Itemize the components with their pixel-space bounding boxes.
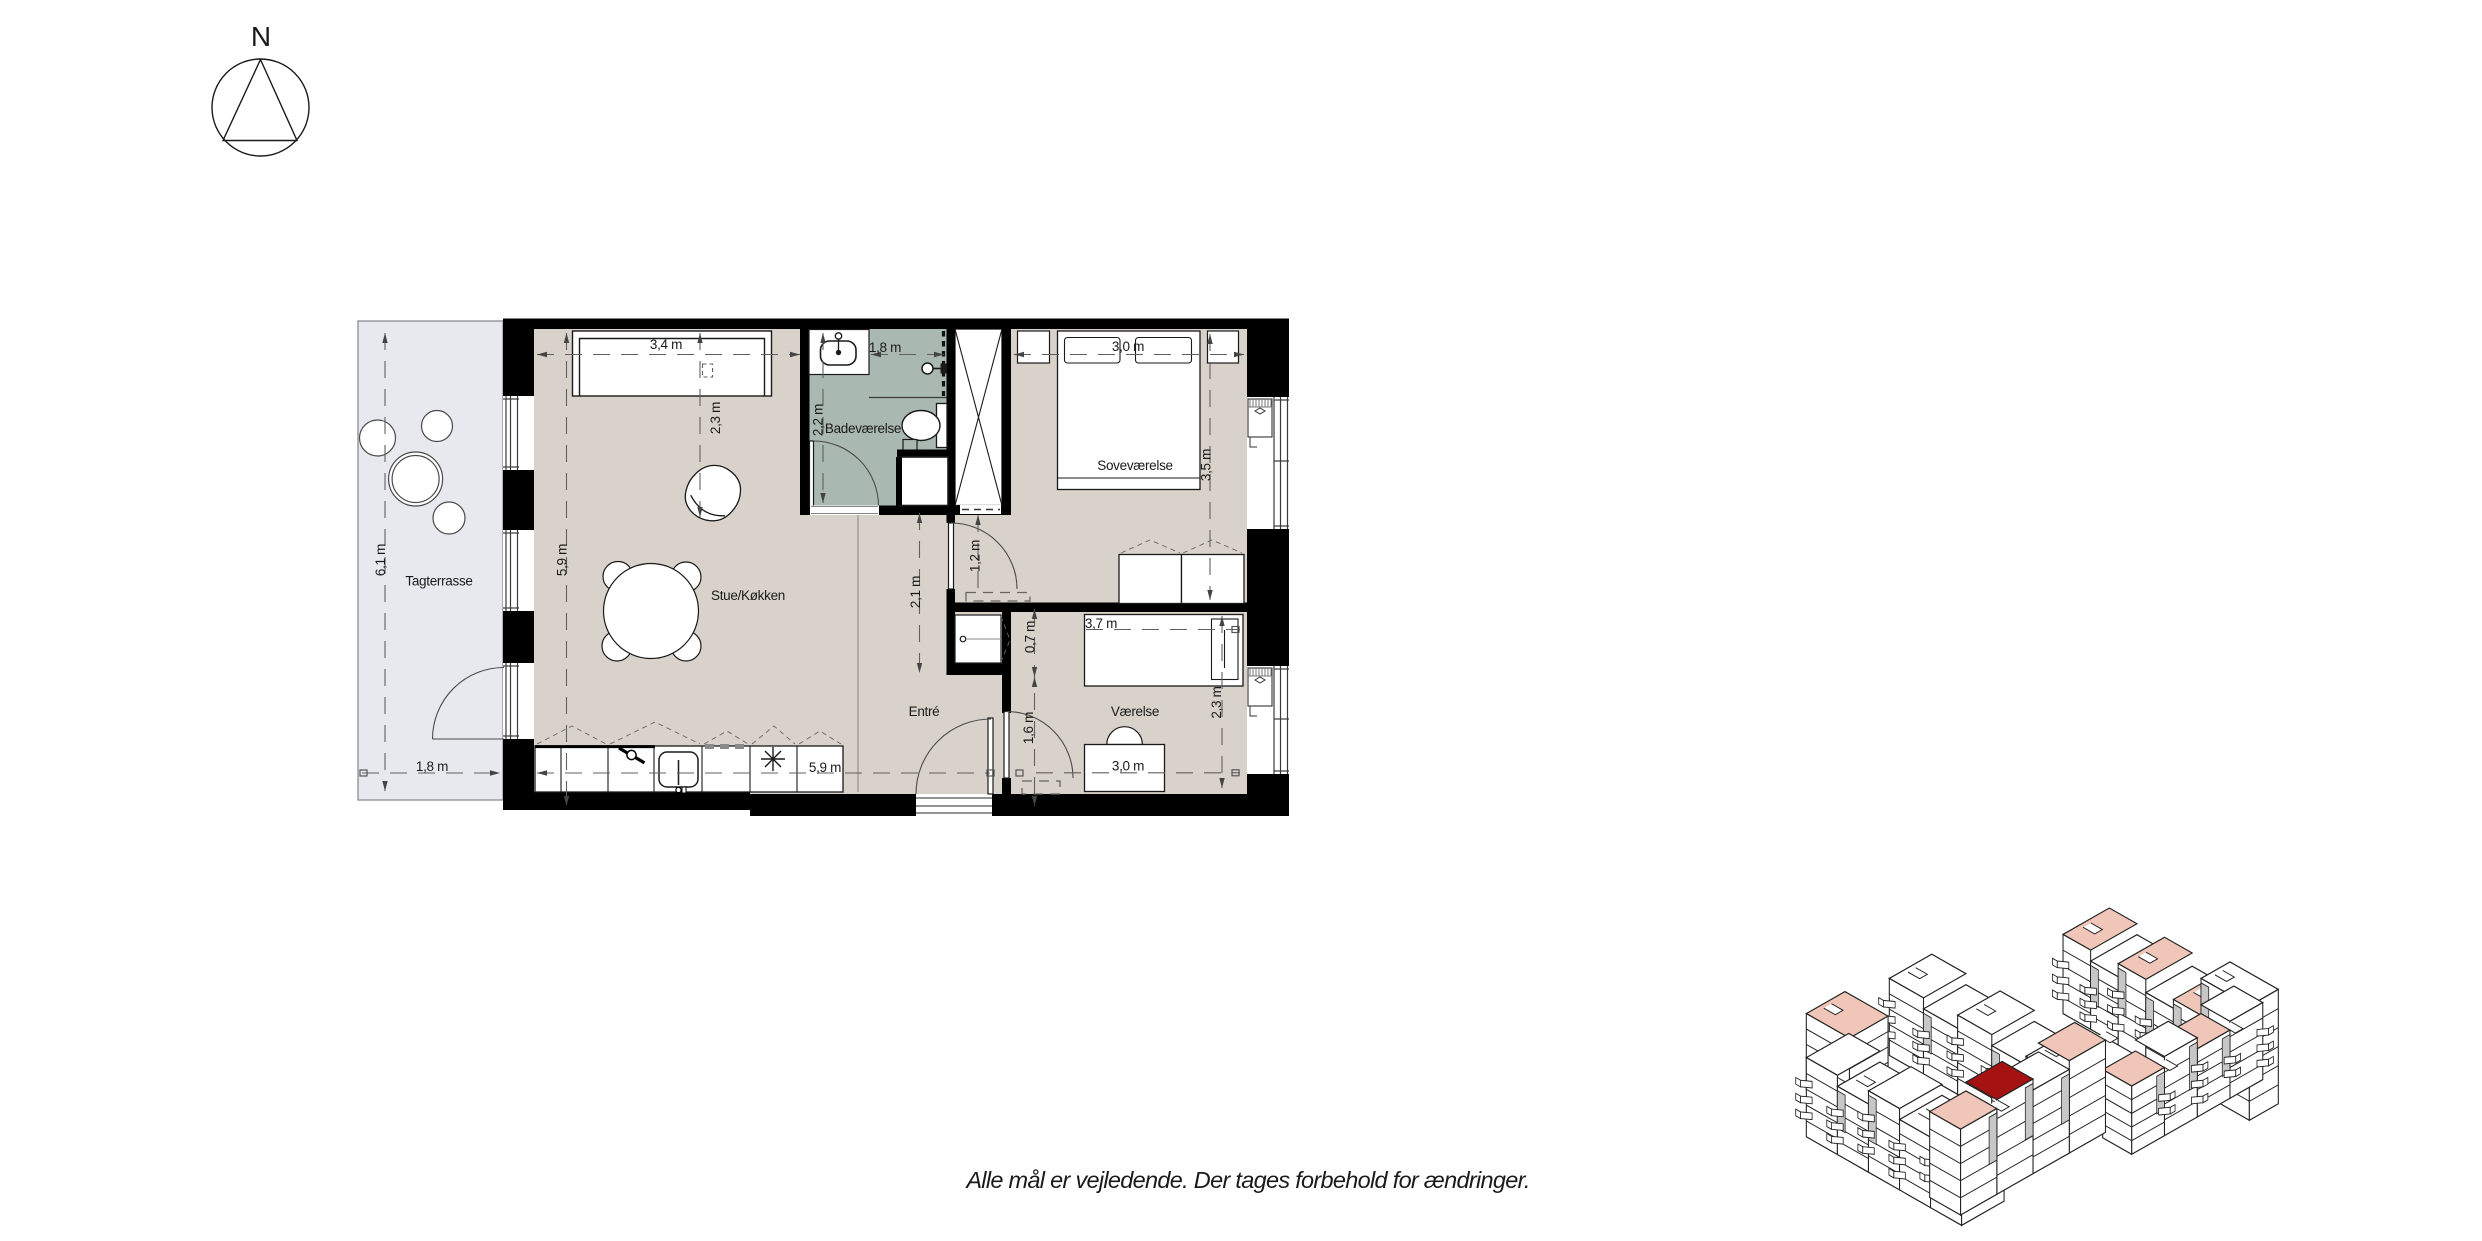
svg-text:5,9 m: 5,9 m [809,760,841,775]
svg-text:Soveværelse: Soveværelse [1097,458,1173,473]
svg-text:5,9 m: 5,9 m [555,544,570,576]
svg-text:Tagterrasse: Tagterrasse [405,574,472,589]
svg-text:1,8 m: 1,8 m [869,340,901,355]
svg-text:Entré: Entré [909,704,940,719]
svg-text:1,6 m: 1,6 m [1021,712,1036,744]
svg-text:0,7 m: 0,7 m [1023,621,1038,653]
svg-text:Badeværelse: Badeværelse [825,421,901,436]
svg-text:1,8 m: 1,8 m [416,759,448,774]
svg-text:3,5 m: 3,5 m [1199,449,1214,481]
svg-text:2,2 m: 2,2 m [811,404,826,436]
svg-text:3,0 m: 3,0 m [1112,759,1144,774]
svg-text:3,4 m: 3,4 m [650,337,682,352]
svg-text:2,3 m: 2,3 m [1209,686,1224,718]
svg-text:2,1 m: 2,1 m [908,576,923,608]
svg-text:6,1 m: 6,1 m [373,544,388,576]
svg-text:Stue/Køkken: Stue/Køkken [711,588,785,603]
svg-text:Alle mål er vejledende. Der ta: Alle mål er vejledende. Der tages forbeh… [964,1167,1529,1193]
svg-text:N: N [251,21,271,52]
svg-text:Værelse: Værelse [1111,704,1159,719]
svg-text:2,3 m: 2,3 m [708,402,723,434]
svg-text:3,0 m: 3,0 m [1112,339,1144,354]
svg-text:1,2 m: 1,2 m [968,540,983,572]
svg-text:3,7 m: 3,7 m [1085,616,1117,631]
